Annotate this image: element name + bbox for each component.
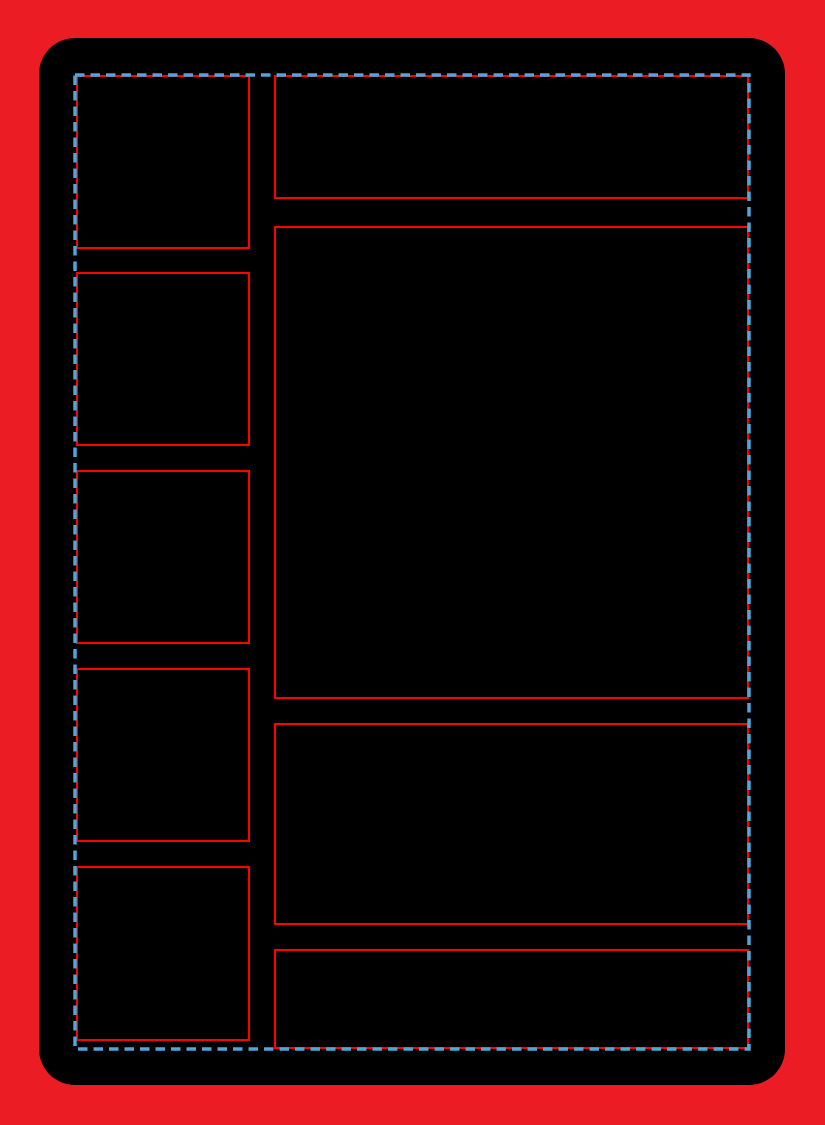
left-frame-5 [76, 866, 250, 1041]
right-frame-middle [274, 723, 749, 925]
right-frame-top [274, 75, 749, 199]
placeholder-frames-layer [0, 0, 825, 1125]
left-frame-4 [76, 668, 250, 842]
left-frame-2 [76, 272, 250, 446]
left-frame-1 [76, 75, 250, 249]
card-template-canvas [0, 0, 825, 1125]
right-frame-bottom [274, 949, 749, 1049]
right-frame-large [274, 226, 749, 699]
left-frame-3 [76, 470, 250, 644]
